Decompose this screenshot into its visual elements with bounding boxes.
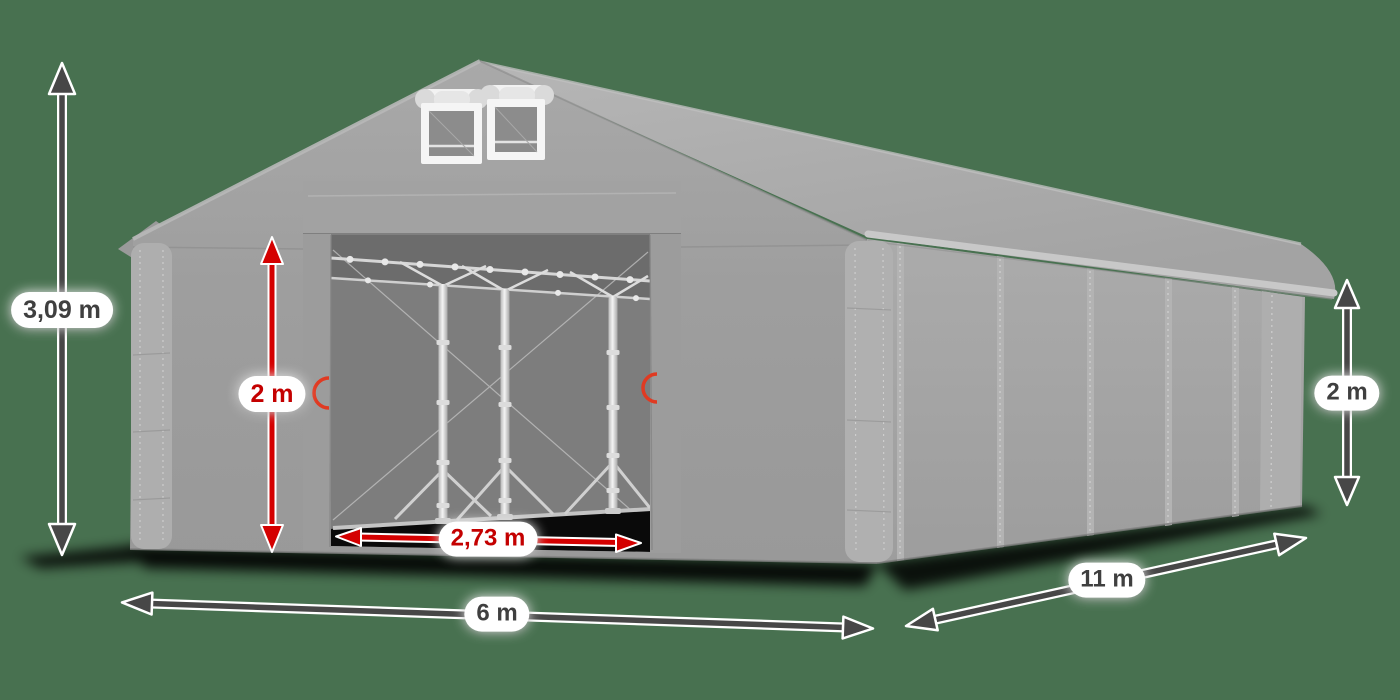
door-post-right (650, 234, 681, 553)
tent (118, 61, 1335, 563)
vent-window-right (480, 85, 554, 160)
dimension-label-door-height: 2 m (238, 376, 305, 412)
door-interior (325, 230, 660, 560)
door-post-left-edge (330, 235, 331, 547)
front-right-corner-strip (845, 241, 893, 562)
dimension-label-side-length: 11 m (1068, 563, 1145, 598)
door-post-left (303, 234, 331, 550)
dimension-label-side-wall-height: 2 m (1314, 376, 1379, 411)
dimension-label-front-width: 6 m (464, 597, 529, 632)
tent-illustration (0, 0, 1400, 700)
dimension-label-total-height: 3,09 m (11, 292, 113, 328)
dimension-label-door-width: 2,73 m (439, 522, 538, 557)
vent-window-left (415, 89, 488, 164)
back-corner-strip (1260, 291, 1302, 511)
door-header (303, 181, 681, 235)
front-left-corner-strip (131, 243, 172, 549)
diagram-stage: 3,09 m 2 m 2,73 m 6 m 11 m 2 m (0, 0, 1400, 700)
